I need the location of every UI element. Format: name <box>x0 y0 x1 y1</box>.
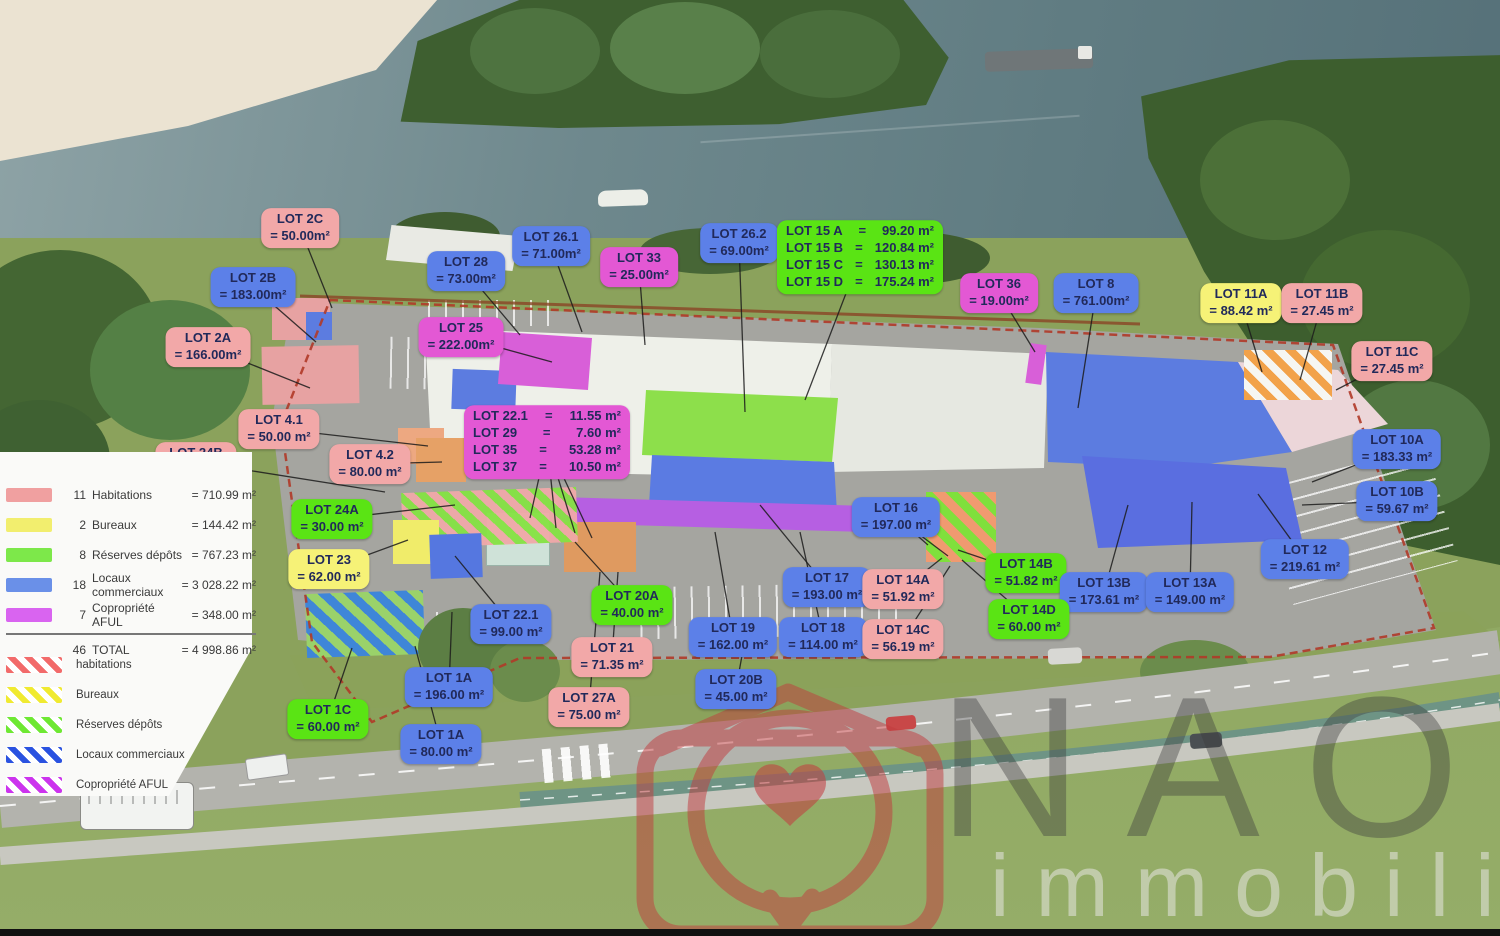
trees <box>470 8 600 94</box>
lot-label-26.2: LOT 26.2= 69.00m² <box>700 223 778 263</box>
lot-label-23: LOT 23= 62.00 m² <box>288 549 369 589</box>
legend-row-bureaux: 2Bureaux= 144.42 m² <box>6 510 256 540</box>
lot-label-2A: LOT 2A= 166.00m² <box>166 327 251 367</box>
legend-hatch-row-habitations: habitations <box>6 650 186 680</box>
lot-label-26.1: LOT 26.1= 71.00m² <box>512 226 590 266</box>
legend-hatch-row-bureaux: Bureaux <box>6 680 186 710</box>
lot-label-20B: LOT 20B= 45.00 m² <box>695 669 776 709</box>
bottom-bar <box>0 929 1500 936</box>
zone-commercial <box>306 312 332 340</box>
lot-label-10B: LOT 10B= 59.67 m² <box>1356 481 1437 521</box>
lot-label-19: LOT 19= 162.00 m² <box>689 617 777 657</box>
lot-label-8: LOT 8= 761.00m² <box>1054 273 1139 313</box>
lot-label-1A-1: LOT 1A= 196.00 m² <box>405 667 493 707</box>
lot-label-14B: LOT 14B= 51.82 m² <box>985 553 1066 593</box>
lot-label-21: LOT 21= 71.35 m² <box>571 637 652 677</box>
lot-label-18: LOT 18= 114.00 m² <box>779 617 867 657</box>
trees <box>610 2 760 94</box>
lot-label-1A-2: LOT 1A= 80.00 m² <box>400 724 481 764</box>
lot-label-11A: LOT 11A= 88.42 m² <box>1200 283 1281 323</box>
building-roof <box>262 345 360 405</box>
lot-label-27A: LOT 27A= 75.00 m² <box>548 687 629 727</box>
legend-row-locaux-commerciaux: 18Locaux commerciaux= 3 028.22 m² <box>6 570 256 600</box>
lot-label-17: LOT 17= 193.00 m² <box>783 567 871 607</box>
car <box>885 715 916 732</box>
trees <box>90 300 250 440</box>
lot-label-13B: LOT 13B= 173.61 m² <box>1060 572 1148 612</box>
hatch-mixed <box>1244 350 1332 400</box>
lot-label-13A: LOT 13A= 149.00 m² <box>1146 572 1234 612</box>
lot-label-2C: LOT 2C= 50.00m² <box>261 208 339 248</box>
lot-label-25: LOT 25= 222.00m² <box>419 317 504 357</box>
lot-label-10A: LOT 10A= 183.33 m² <box>1353 429 1441 469</box>
zone-commercial <box>429 533 483 579</box>
lot-label-36: LOT 36= 19.00m² <box>960 273 1038 313</box>
crosswalk <box>542 743 619 783</box>
lot-label-33: LOT 33= 25.00m² <box>600 247 678 287</box>
barge-cabin <box>1078 46 1092 59</box>
lot-label-4.2: LOT 4.2= 80.00 m² <box>329 444 410 484</box>
legend-hatch-row-r-serves-d-p-ts: Réserves dépôts <box>6 710 186 740</box>
trees <box>760 10 900 98</box>
legend-row-habitations: 11Habitations= 710.99 m² <box>6 480 256 510</box>
hatch-mixed <box>305 590 425 658</box>
legend-row-copropri-t-aful: 7Copropriété AFUL= 348.00 m² <box>6 600 256 630</box>
lot-label-1C: LOT 1C= 60.00 m² <box>287 699 368 739</box>
legend-hatch-panel: habitationsBureauxRéserves dépôtsLocaux … <box>6 650 186 800</box>
watermark-subtitle: immobilier <box>990 842 1500 930</box>
lot-label-4.1: LOT 4.1= 50.00 m² <box>238 409 319 449</box>
lot-label-28: LOT 28= 73.00m² <box>427 251 505 291</box>
legend-hatch-row-copropri-t-aful: Copropriété AFUL <box>6 770 186 800</box>
legend-row-r-serves-d-p-ts: 8Réserves dépôts= 767.23 m² <box>6 540 256 570</box>
lot-label-11C: LOT 11C= 27.45 m² <box>1351 341 1432 381</box>
lot-label-15: LOT 15 A=99.20 m²LOT 15 B=120.84 m²LOT 1… <box>777 220 943 294</box>
lot-label-11B: LOT 11B= 27.45 m² <box>1281 283 1362 323</box>
lot-label-16: LOT 16= 197.00 m² <box>852 497 940 537</box>
lot-label-12: LOT 12= 219.61 m² <box>1261 539 1349 579</box>
legend-panel: 11Habitations= 710.99 m²2Bureaux= 144.42… <box>6 480 256 665</box>
lot-label-14D: LOT 14D= 60.00 m² <box>988 599 1069 639</box>
lot-label-22.1: LOT 22.1= 99.00 m² <box>470 604 551 644</box>
lot-label-22multi: LOT 22.1=11.55 m²LOT 29=7.60 m²LOT 35=53… <box>464 405 630 479</box>
lot-label-2B: LOT 2B= 183.00m² <box>211 267 296 307</box>
zone-habitation <box>416 438 466 482</box>
legend-hatch-row-locaux-commerciaux: Locaux commerciaux <box>6 740 186 770</box>
lot-label-20A: LOT 20A= 40.00 m² <box>591 585 672 625</box>
lot-label-14C: LOT 14C= 56.19 m² <box>862 619 943 659</box>
lot-label-24A: LOT 24A= 30.00 m² <box>291 499 372 539</box>
site-plan-canvas: NAOS immobilier LOT 2C= 50.00m²LOT 2B= 1… <box>0 0 1500 936</box>
trees <box>1200 120 1350 240</box>
boat <box>598 189 649 207</box>
lot-label-14A: LOT 14A= 51.92 m² <box>862 569 943 609</box>
